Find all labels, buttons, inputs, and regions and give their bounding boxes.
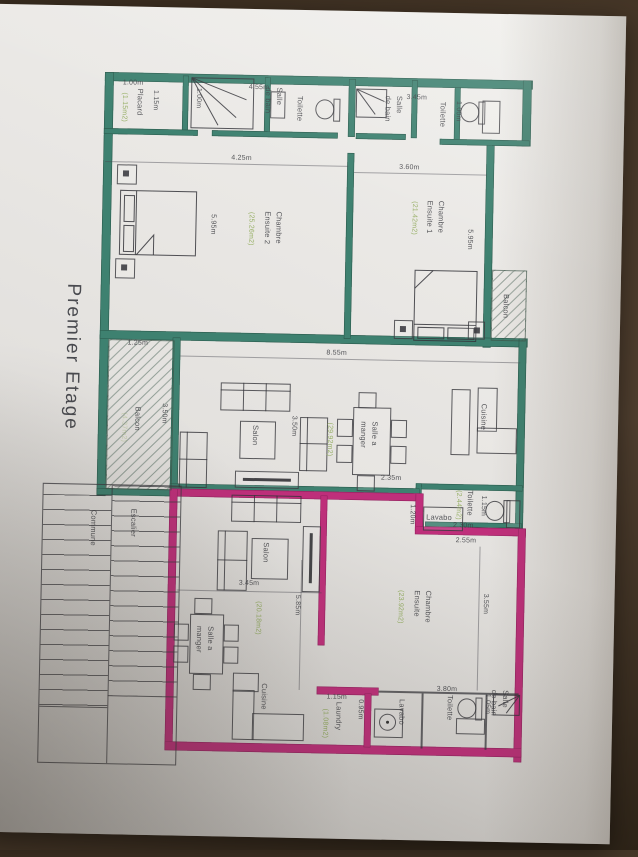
- area-laundry: (1.08m2): [319, 708, 330, 738]
- dimension-line: [354, 172, 487, 176]
- kitchen-counter: [476, 428, 517, 455]
- sofa-icon: [220, 382, 291, 411]
- chair-icon: [174, 623, 189, 640]
- nightstand-icon: [394, 320, 413, 339]
- i: [315, 99, 334, 119]
- wall-segment-thin: [421, 693, 424, 748]
- dim-sdb1-shower: 1.00m: [192, 88, 203, 109]
- chair-icon: [358, 392, 376, 408]
- plan-labels: Premier Etage1.00m4.55m3.45m1.15mPlacard…: [9, 0, 638, 7]
- area-living: (29.92m2): [323, 422, 334, 456]
- i: [457, 698, 476, 718]
- chair-icon: [224, 624, 239, 641]
- dim-095: 0.95m: [354, 699, 365, 720]
- room-toilette-2: Toilette: [437, 102, 449, 128]
- chair-icon: [194, 598, 212, 614]
- dim-placard-width: 1.00m: [123, 78, 144, 89]
- wall-segment-pink: [513, 528, 526, 762]
- room-lavabo-2: Lavabo: [396, 699, 408, 725]
- room-salle-de-bain-2: Salle de bain: [382, 96, 405, 122]
- chair-icon: [337, 419, 353, 437]
- chair-icon: [336, 445, 352, 463]
- wall-segment-green: [411, 80, 418, 138]
- room-salle-a-manger-2: Salle a manger: [193, 626, 216, 653]
- room-chambre-ensuite-1: Chambre Ensuite 1: [424, 200, 447, 234]
- wall-segment-green: [104, 128, 198, 136]
- nightstand-icon: [117, 164, 137, 184]
- wall-segment-green: [356, 133, 406, 140]
- toilet-icon: [314, 96, 341, 124]
- area-placard: (1.15m2): [118, 92, 129, 122]
- area-balcon-left: (4.37m2): [118, 412, 129, 442]
- area-salon-2: (20.18m2): [252, 601, 263, 635]
- dim-chambre1-height: 5.95m: [464, 229, 475, 250]
- dim-120: 1.20m: [406, 504, 417, 525]
- dimension-line: [105, 161, 348, 167]
- nightstand-icon: [115, 258, 135, 278]
- dim-105: 1.05m: [481, 694, 492, 715]
- wall-segment-pink: [164, 741, 521, 757]
- room-chambre-ensuite-3: Chambre Ensuite: [411, 590, 434, 623]
- dim-chambre2-height: 5.95m: [207, 214, 218, 235]
- path: [415, 270, 433, 288]
- dim-salon1: 3.50m: [288, 416, 299, 437]
- dim-235: 2.35m: [381, 474, 402, 485]
- dim-chambre1-width: 3.60m: [399, 163, 420, 174]
- path: [356, 89, 384, 115]
- sofa-icon: [231, 495, 302, 523]
- room-balcon-left: Balcon: [132, 407, 144, 431]
- wall-segment-green: [182, 76, 189, 134]
- rect: [124, 195, 135, 221]
- chair-icon: [173, 645, 188, 662]
- kitchen-counter: [252, 713, 305, 741]
- dim-placard-depth: 1.15m: [149, 90, 160, 111]
- area-chambre-ensuite-2: (25.26m2): [245, 212, 256, 246]
- room-salon-1: Salon: [250, 425, 262, 445]
- dim-salon2-width: 3.45m: [239, 579, 260, 590]
- rect: [119, 190, 196, 256]
- chair-icon: [223, 646, 238, 663]
- dim-toilette-mid: 1.15m: [477, 496, 488, 517]
- i: [460, 102, 479, 122]
- loveseat-icon: [179, 432, 208, 489]
- wall-segment-thin: [39, 706, 107, 708]
- wall-segment-green: [522, 80, 532, 146]
- dim-toilette-2: 1.00m: [452, 101, 463, 122]
- room-salle-de-bain-1: Salle de bain: [262, 87, 285, 113]
- wall-segment-green: [440, 139, 530, 147]
- paper-sheet: Premier Etage1.00m4.55m3.45m1.15mPlacard…: [0, 4, 626, 845]
- area-toilette-mid: (2.44m2): [452, 490, 463, 520]
- bathroom-cabinet: [506, 500, 521, 528]
- chair-icon: [193, 674, 211, 690]
- sink-icon: [456, 718, 485, 735]
- stair-treads: [39, 494, 111, 708]
- room-commune: Commune: [88, 510, 100, 546]
- room-chambre-ensuite-2: Chambre Ensuite 2: [262, 211, 285, 245]
- room-toilette-mid: Toilette: [464, 490, 476, 516]
- room-toilette-3: Toilette: [444, 695, 456, 721]
- tv-stand: [235, 471, 299, 489]
- dim-living-width: 8.55m: [326, 348, 347, 359]
- room-laundry: Laundry: [333, 702, 345, 731]
- chair-icon: [357, 475, 375, 491]
- room-salle-a-manger-1: Salle a manger: [358, 421, 381, 448]
- room-cuisine-2: Cuisine: [258, 683, 270, 710]
- line: [414, 324, 476, 325]
- dimension-line: [180, 356, 520, 364]
- bathroom-cabinet: [482, 101, 501, 134]
- wall-segment-green: [212, 130, 338, 139]
- room-toilette-1: Toilette: [294, 96, 306, 122]
- wall-segment-green: [344, 153, 355, 339]
- b: [333, 99, 340, 122]
- path: [136, 235, 153, 255]
- room-balcon-right: Balcon: [500, 294, 512, 318]
- stair-treads: [109, 485, 181, 696]
- dim-balcon-left-width: 1.25m: [127, 338, 148, 349]
- chair-icon: [390, 446, 406, 464]
- room-cuisine-1: Cuisine: [478, 404, 490, 431]
- floor-plan: Premier Etage1.00m4.55m3.45m1.15mPlacard…: [0, 0, 638, 857]
- room-placard: Placard: [134, 89, 146, 116]
- rect: [123, 225, 134, 251]
- dim-255: 2.55m: [456, 536, 477, 547]
- room-salon-2: Salon: [260, 542, 272, 562]
- kitchen-counter: [450, 389, 470, 455]
- room-lavabo-mid: Lavabo: [426, 512, 452, 524]
- dim-chambre2-width: 4.25m: [231, 154, 252, 165]
- room-escalier: Escalier: [128, 509, 140, 538]
- floor-title: Premier Etage: [56, 283, 87, 431]
- dim-230: 2.30m: [453, 521, 474, 532]
- line: [135, 191, 136, 255]
- area-chambre-ensuite-1: (21.42m2): [408, 201, 419, 235]
- rect: [418, 327, 444, 339]
- dim-chambre3-height: 3.55m: [479, 594, 490, 615]
- area-chambre-ensuite-3: (23.92m2): [394, 590, 405, 624]
- i: [485, 501, 504, 521]
- dim-sdb2-width: 3.45m: [406, 93, 427, 104]
- tv-stand: [302, 526, 321, 592]
- nightstand-icon: [468, 321, 485, 339]
- staircase: [37, 483, 182, 766]
- chair-icon: [391, 420, 407, 438]
- dim-balcon-left-height: 3.50m: [158, 403, 169, 424]
- dimension-line: [477, 547, 481, 691]
- wall-segment-thin: [107, 695, 176, 697]
- wall-segment-green: [105, 72, 533, 90]
- dim-585: 5.85m: [291, 595, 302, 616]
